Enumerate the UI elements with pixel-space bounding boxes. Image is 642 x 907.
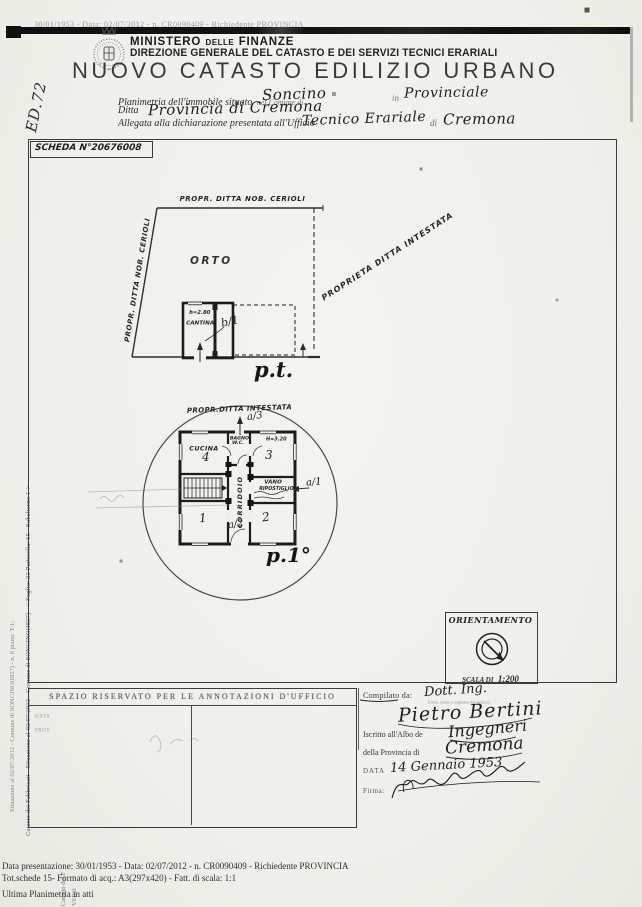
annotations-label-prot: PROT. xyxy=(35,727,52,733)
form-value-provincia: Provinciale xyxy=(404,84,489,101)
form-line3-label-di: di xyxy=(430,118,437,128)
form-line3-label: Allegata alla dichiarazione presentata a… xyxy=(118,118,315,129)
compilato-label: Compilato da: xyxy=(363,691,412,700)
vano-label-1: VANO xyxy=(258,478,287,484)
footer-line1: Data presentazione: 30/01/1953 - Data: 0… xyxy=(2,861,348,871)
plan-area-border xyxy=(28,139,617,683)
ministry-word-2: DELLE xyxy=(206,38,235,47)
margin-text-short: Situazione al 02/07/2012 - Comune di SON… xyxy=(9,597,16,812)
bagno-label: BAGNO W.C. xyxy=(230,436,246,446)
scale-value: 1:200 xyxy=(498,674,519,684)
cantina-label: CANTINA xyxy=(186,319,210,325)
vano-label-2: RIPOSTIGLIO xyxy=(259,486,287,491)
footer-line3: Ultima Planimetria in atti xyxy=(2,889,94,899)
compiler-separator xyxy=(358,688,359,750)
boundary-top-label: PROPR. DITTA NOB. CERIOLI xyxy=(160,195,325,203)
cucina-number: 4 xyxy=(202,450,210,464)
form-line1-label-in: in xyxy=(392,93,399,103)
room1-number: 1 xyxy=(198,511,207,526)
scan-noise-specks xyxy=(0,0,2,2)
form-value-citta: Cremona xyxy=(443,109,516,128)
annotations-label-data: DATA xyxy=(35,713,50,719)
scanned-document-page: 30/01/1953 - Data: 02/07/2012 - n. CR009… xyxy=(0,0,642,907)
annotation-a3: a/3 xyxy=(246,410,263,423)
annotations-header: SPAZIO RISERVATO PER LE ANNOTAZIONI D'UF… xyxy=(29,689,356,706)
cantina-height-label: h=2.80 xyxy=(189,310,209,316)
room3-height-label: H=3.20 xyxy=(266,436,287,442)
scanner-artifact-blob xyxy=(6,26,21,38)
margin-fragment-1: Catasto dei F xyxy=(60,854,67,906)
annotations-box: SPAZIO RISERVATO PER LE ANNOTAZIONI D'UF… xyxy=(28,688,357,828)
annotation-a1: a/1 xyxy=(306,476,323,488)
albo-label: Iscritto all'Albo de xyxy=(363,730,423,739)
provincia-label: della Provincia di xyxy=(363,748,419,757)
garden-label: ORTO xyxy=(190,255,233,267)
footer-line2: Tot.schede 15- Formato di acq.: A3(297x4… xyxy=(2,873,236,883)
scan-edge-streak xyxy=(630,27,633,122)
scheda-box: SCHEDA N°20676008 xyxy=(30,141,153,158)
bagno-line2: W.C. xyxy=(230,441,246,446)
first-floor-label: p.1° xyxy=(266,543,311,567)
room3-number: 3 xyxy=(265,448,273,462)
page-title: NUOVO CATASTO EDILIZIO URBANO xyxy=(72,58,559,84)
room2-number: 2 xyxy=(261,510,271,525)
annotations-divider xyxy=(191,706,192,825)
margin-text-long: Catasto dei Fabbricati - Situazione al 0… xyxy=(25,474,32,836)
firma-label: Firma: xyxy=(363,787,385,795)
orientation-title: ORIENTAMENTO xyxy=(445,615,536,625)
form-line2-label: Ditta xyxy=(118,105,139,116)
scheda-number: SCHEDA N°20676008 xyxy=(34,143,142,153)
margin-fragment-2: VERO xyxy=(71,876,78,906)
ground-floor-label: p.t. xyxy=(254,357,293,382)
data-label: DATA xyxy=(363,767,385,775)
